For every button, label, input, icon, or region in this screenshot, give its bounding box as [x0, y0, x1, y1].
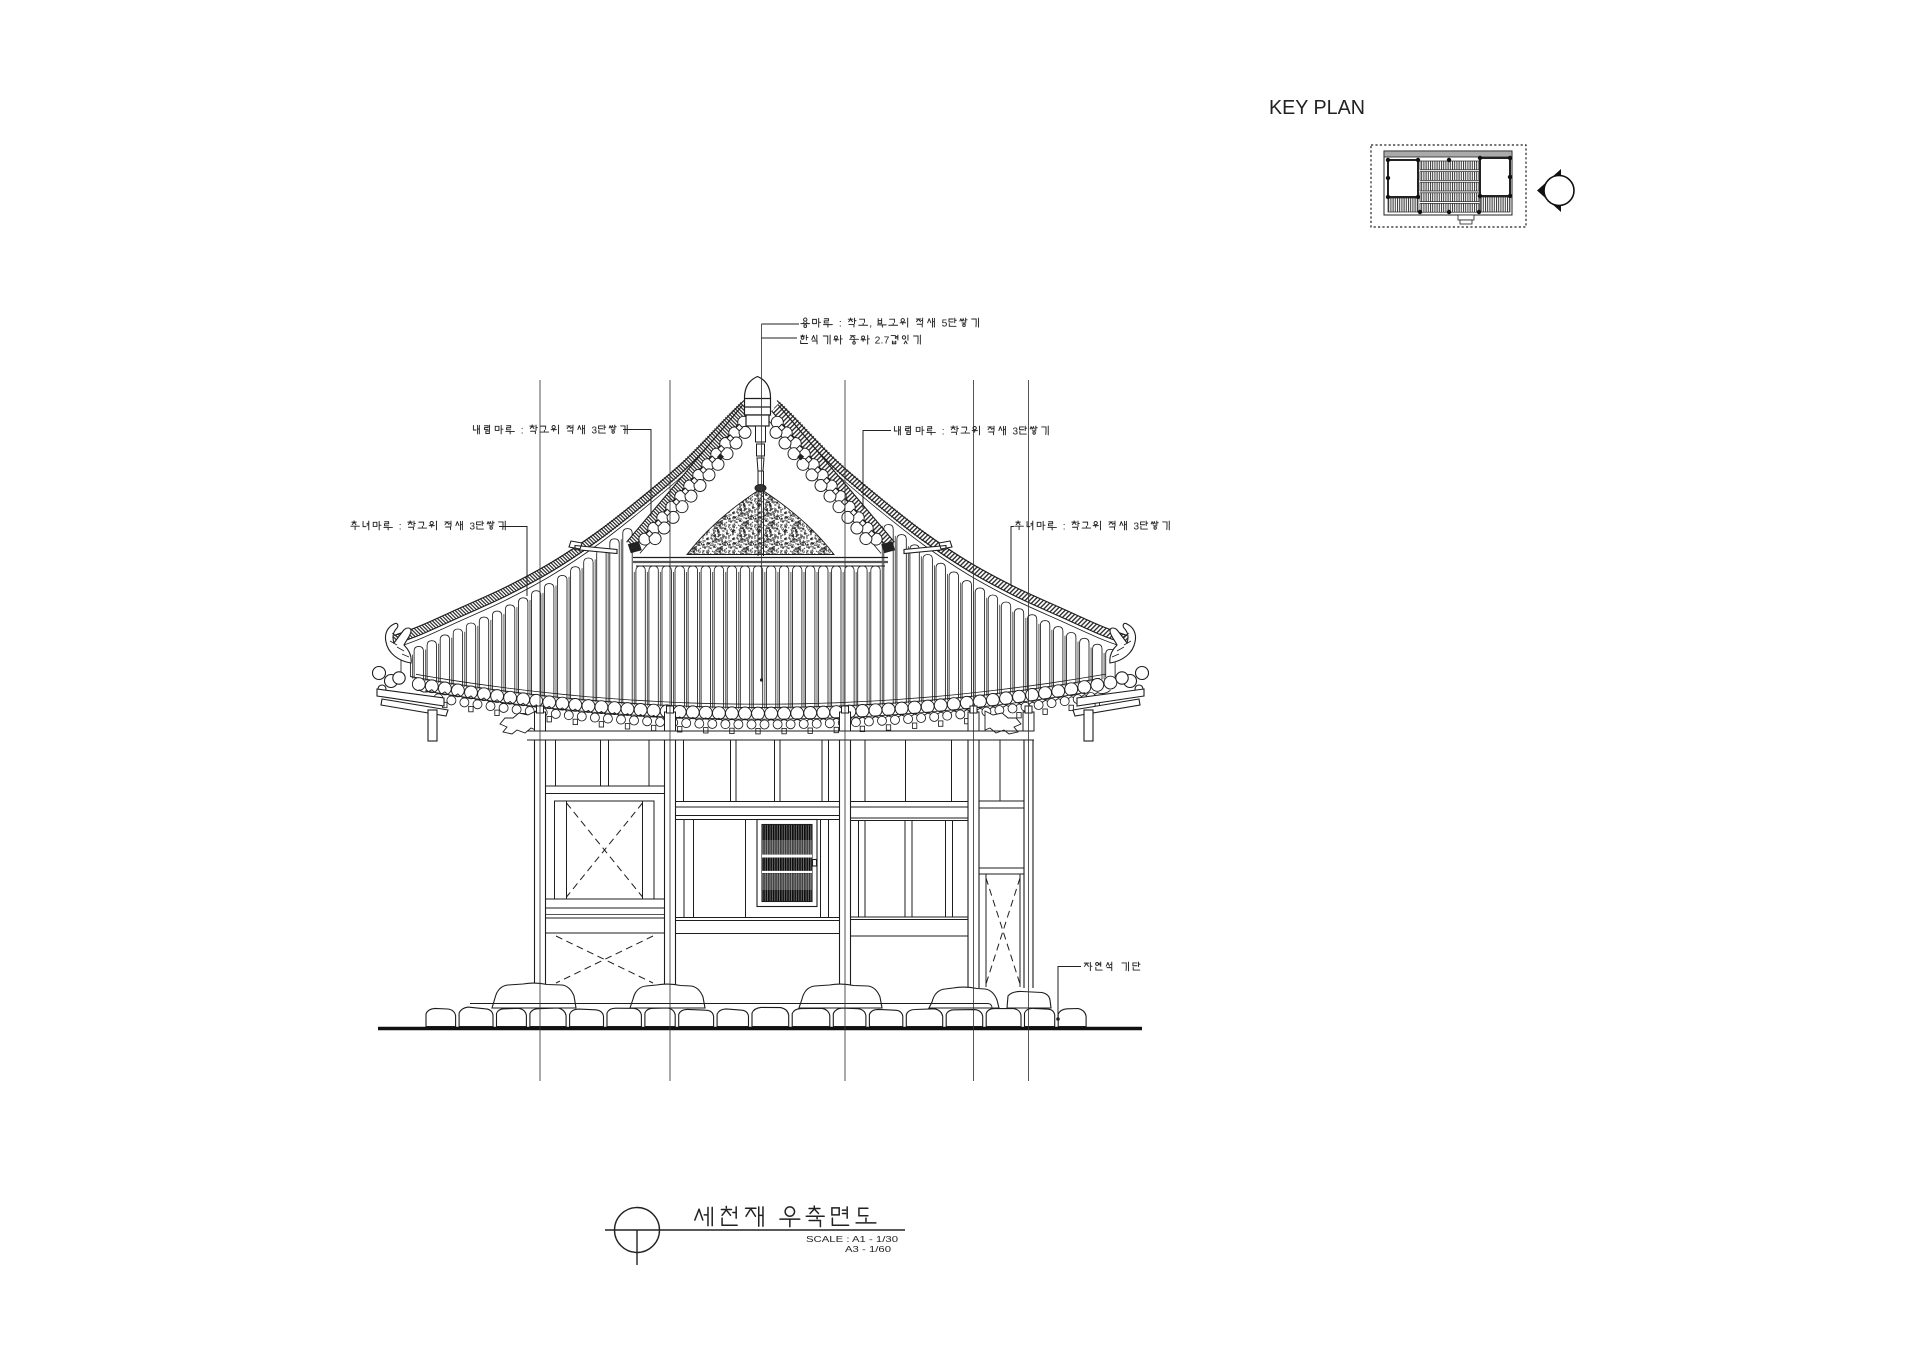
svg-text::: :: [516, 425, 528, 436]
svg-text:2.7: 2.7: [872, 336, 890, 347]
svg-text:KEY PLAN: KEY PLAN: [1269, 97, 1365, 119]
svg-text::: :: [937, 426, 949, 437]
svg-text::: :: [394, 521, 406, 532]
svg-text::: :: [1058, 521, 1070, 532]
svg-text:5: 5: [938, 319, 948, 330]
svg-text:SCALE : A1 - 1/30: SCALE : A1 - 1/30: [806, 1234, 898, 1244]
svg-text:3: 3: [466, 521, 476, 532]
svg-text:3: 3: [1009, 426, 1019, 437]
svg-text:,: ,: [869, 319, 876, 330]
svg-text::: :: [834, 319, 847, 330]
svg-text:3: 3: [588, 425, 598, 436]
svg-text:3: 3: [1130, 521, 1140, 532]
svg-text:A3 - 1/60: A3 - 1/60: [845, 1244, 891, 1254]
